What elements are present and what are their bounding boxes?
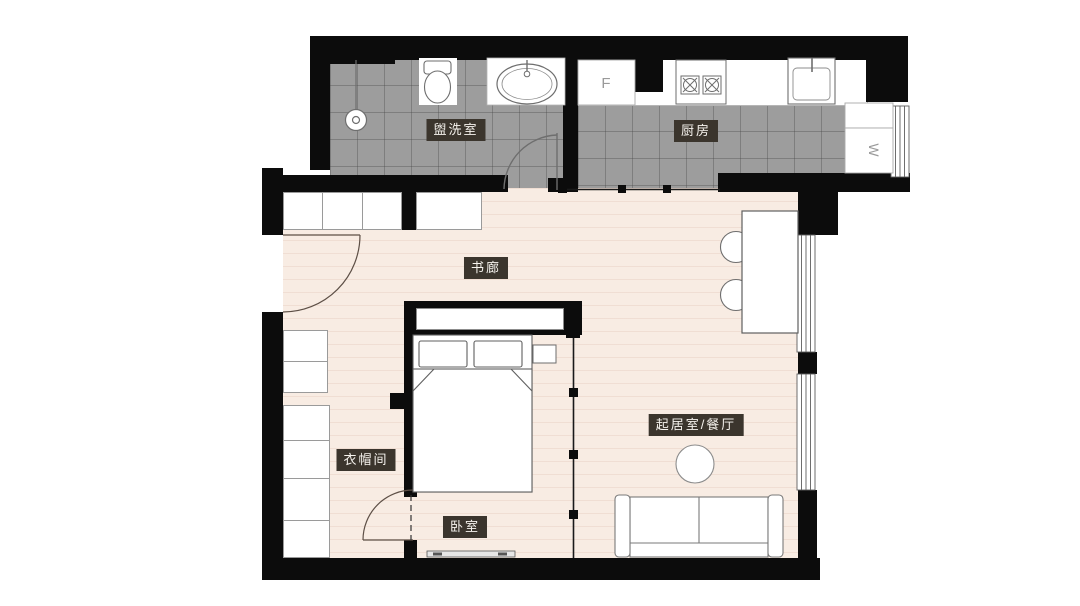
bedroom-console: [427, 551, 515, 557]
bedroom-door: [363, 490, 413, 540]
entry-door: [283, 235, 360, 312]
kitchen-window: [891, 106, 909, 177]
bed: [413, 335, 532, 492]
plan-symbols-layer: F W: [0, 0, 1080, 606]
living-window-lower: [797, 374, 815, 490]
stove-icon: [676, 60, 726, 104]
room-label-washroom: 盥洗室: [426, 119, 485, 141]
nightstand: [533, 345, 556, 363]
washbasin-icon: [487, 58, 565, 105]
room-label-living-dining: 起居室/餐厅: [649, 414, 744, 436]
shower-icon: [346, 60, 367, 131]
glass-partition-bedroom: [566, 328, 580, 558]
fridge-slot: F: [578, 60, 635, 105]
room-label-kitchen: 厨房: [674, 120, 718, 142]
coffee-table: [676, 445, 714, 483]
washer-mark: W: [866, 143, 882, 157]
room-label-book-gallery: 书廊: [464, 257, 508, 279]
floor-plan: F W: [0, 0, 1080, 606]
toilet-icon: [419, 58, 457, 105]
fridge-mark: F: [601, 75, 610, 92]
glass-partition-kitchen: [558, 184, 720, 193]
dining-table: [742, 211, 798, 333]
room-label-bedroom: 卧室: [443, 516, 487, 538]
washroom-door: [504, 133, 557, 190]
sofa: [615, 495, 783, 557]
kitchen-sink-icon: [788, 58, 835, 104]
washer-slot: W: [845, 103, 893, 173]
living-window-upper: [797, 235, 815, 352]
room-label-cloakroom: 衣帽间: [336, 449, 395, 471]
